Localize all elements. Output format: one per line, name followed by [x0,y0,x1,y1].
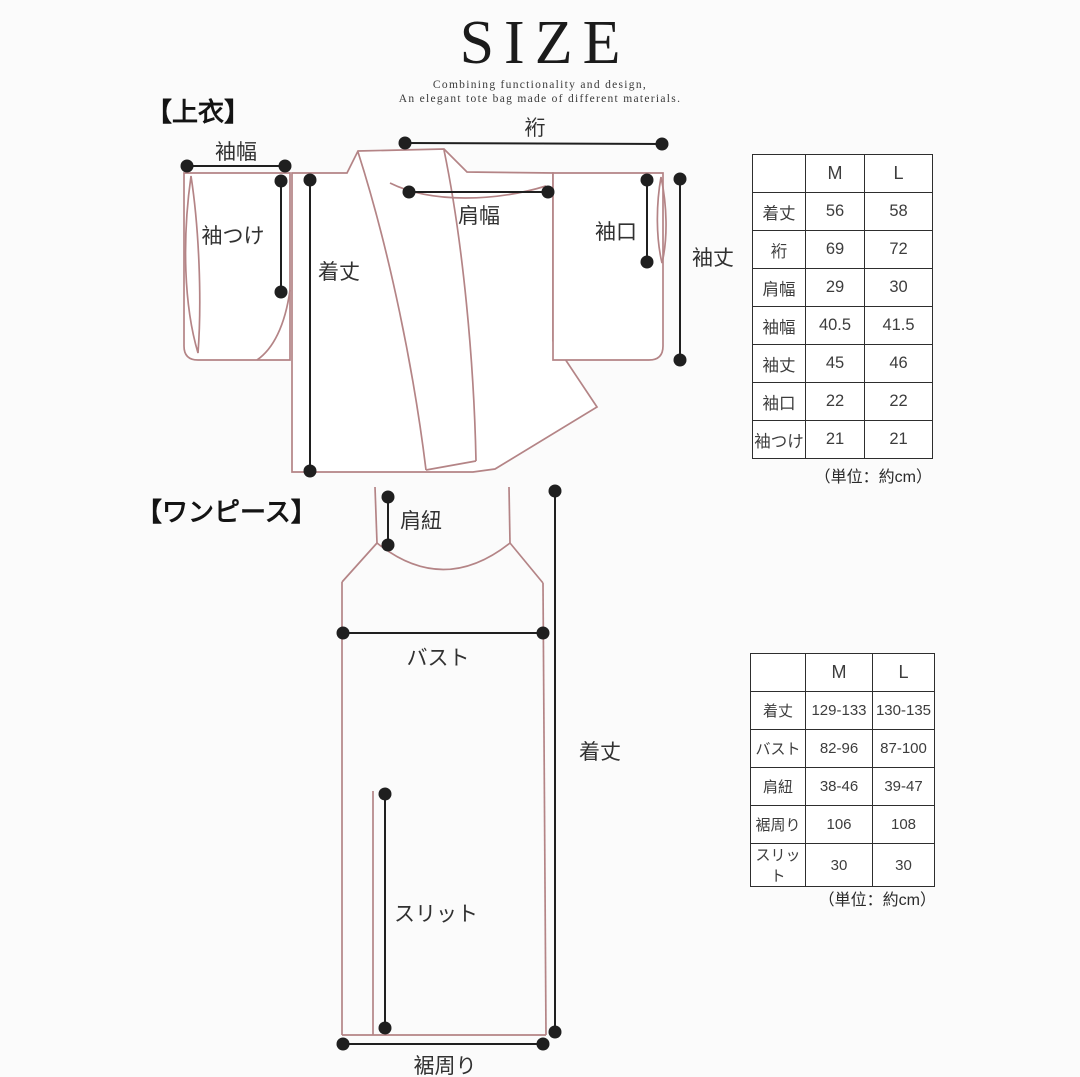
value-l: 30 [873,844,935,887]
measure-dress-length [549,485,562,1039]
label-yuki: 裄 [525,112,546,142]
dress-outline [342,487,546,1035]
label-bust: バスト [407,642,470,672]
unit-note-dress: （単位：約cm） [748,886,936,910]
corner-cell [753,155,806,193]
dress-size-table: M L 着丈 129-133 130-135 バスト 82-96 87-100 … [750,653,935,887]
table-row: スリット 30 30 [751,844,935,887]
table-row: バスト 82-96 87-100 [751,730,935,768]
dress-right-strap [509,487,510,543]
table-row: 袖口 22 22 [753,383,933,421]
row-label: 裄 [753,231,806,269]
table-header-row: M L [753,155,933,193]
corner-cell [751,654,806,692]
value-l: 130-135 [873,692,935,730]
value-m: 56 [806,193,865,231]
unit-note-top: （単位：約cm） [752,463,932,487]
table-row: 袖丈 45 46 [753,345,933,383]
label-hem: 裾周り [414,1050,477,1077]
row-label: 袖つけ [753,421,806,459]
dress-left-armhole [342,543,377,582]
label-cuff: 袖口 [595,216,637,246]
value-m: 82-96 [806,730,873,768]
value-l: 87-100 [873,730,935,768]
row-label: 肩紐 [751,768,806,806]
measure-hem [337,1038,550,1051]
measure-strap [382,491,395,552]
table-row: 肩紐 38-46 39-47 [751,768,935,806]
value-l: 39-47 [873,768,935,806]
label-shoulder-width: 肩幅 [458,200,500,230]
label-strap: 肩紐 [400,505,442,535]
value-m: 129-133 [806,692,873,730]
row-label: 着丈 [751,692,806,730]
value-m: 69 [806,231,865,269]
top-garment-size-table: M L 着丈 56 58 裄 69 72 肩幅 29 30 袖幅 40.5 41… [752,154,933,459]
table-row: 着丈 56 58 [753,193,933,231]
label-sleeve-attach: 袖つけ [202,220,265,250]
value-l: 46 [865,345,933,383]
table-row: 裾周り 106 108 [751,806,935,844]
value-m: 38-46 [806,768,873,806]
value-m: 40.5 [806,307,865,345]
value-m: 21 [806,421,865,459]
col-header-m: M [806,155,865,193]
table-row: 着丈 129-133 130-135 [751,692,935,730]
label-sleeve-length: 袖丈 [692,242,734,272]
measure-slit [379,788,392,1035]
value-m: 45 [806,345,865,383]
row-label: 袖幅 [753,307,806,345]
label-jacket-length: 着丈 [318,256,360,286]
value-l: 41.5 [865,307,933,345]
value-l: 30 [865,269,933,307]
col-header-l: L [865,155,933,193]
value-m: 22 [806,383,865,421]
row-label: バスト [751,730,806,768]
row-label: 肩幅 [753,269,806,307]
measure-bust [337,627,550,640]
row-label: スリット [751,844,806,887]
table-row: 袖つけ 21 21 [753,421,933,459]
dress-left-strap [375,487,377,543]
row-label: 袖丈 [753,345,806,383]
label-slit: スリット [394,898,478,928]
col-header-l: L [873,654,935,692]
value-m: 29 [806,269,865,307]
value-l: 22 [865,383,933,421]
label-sleeve-width: 袖幅 [215,136,257,166]
size-chart-page: SIZE Combining functionality and design,… [0,0,1080,1077]
top-garment-outline [184,149,666,472]
value-l: 58 [865,193,933,231]
value-l: 72 [865,231,933,269]
row-label: 袖口 [753,383,806,421]
label-dress-length: 着丈 [579,736,621,766]
dress-right-armhole [510,543,543,583]
measure-sleeve-length [674,173,687,367]
col-header-m: M [806,654,873,692]
value-m: 30 [806,844,873,887]
dress-right-side [543,583,546,1035]
value-l: 21 [865,421,933,459]
dress-neckline [377,543,510,570]
table-row: 裄 69 72 [753,231,933,269]
table-row: 肩幅 29 30 [753,269,933,307]
table-header-row: M L [751,654,935,692]
table-row: 袖幅 40.5 41.5 [753,307,933,345]
row-label: 着丈 [753,193,806,231]
value-l: 108 [873,806,935,844]
value-m: 106 [806,806,873,844]
row-label: 裾周り [751,806,806,844]
